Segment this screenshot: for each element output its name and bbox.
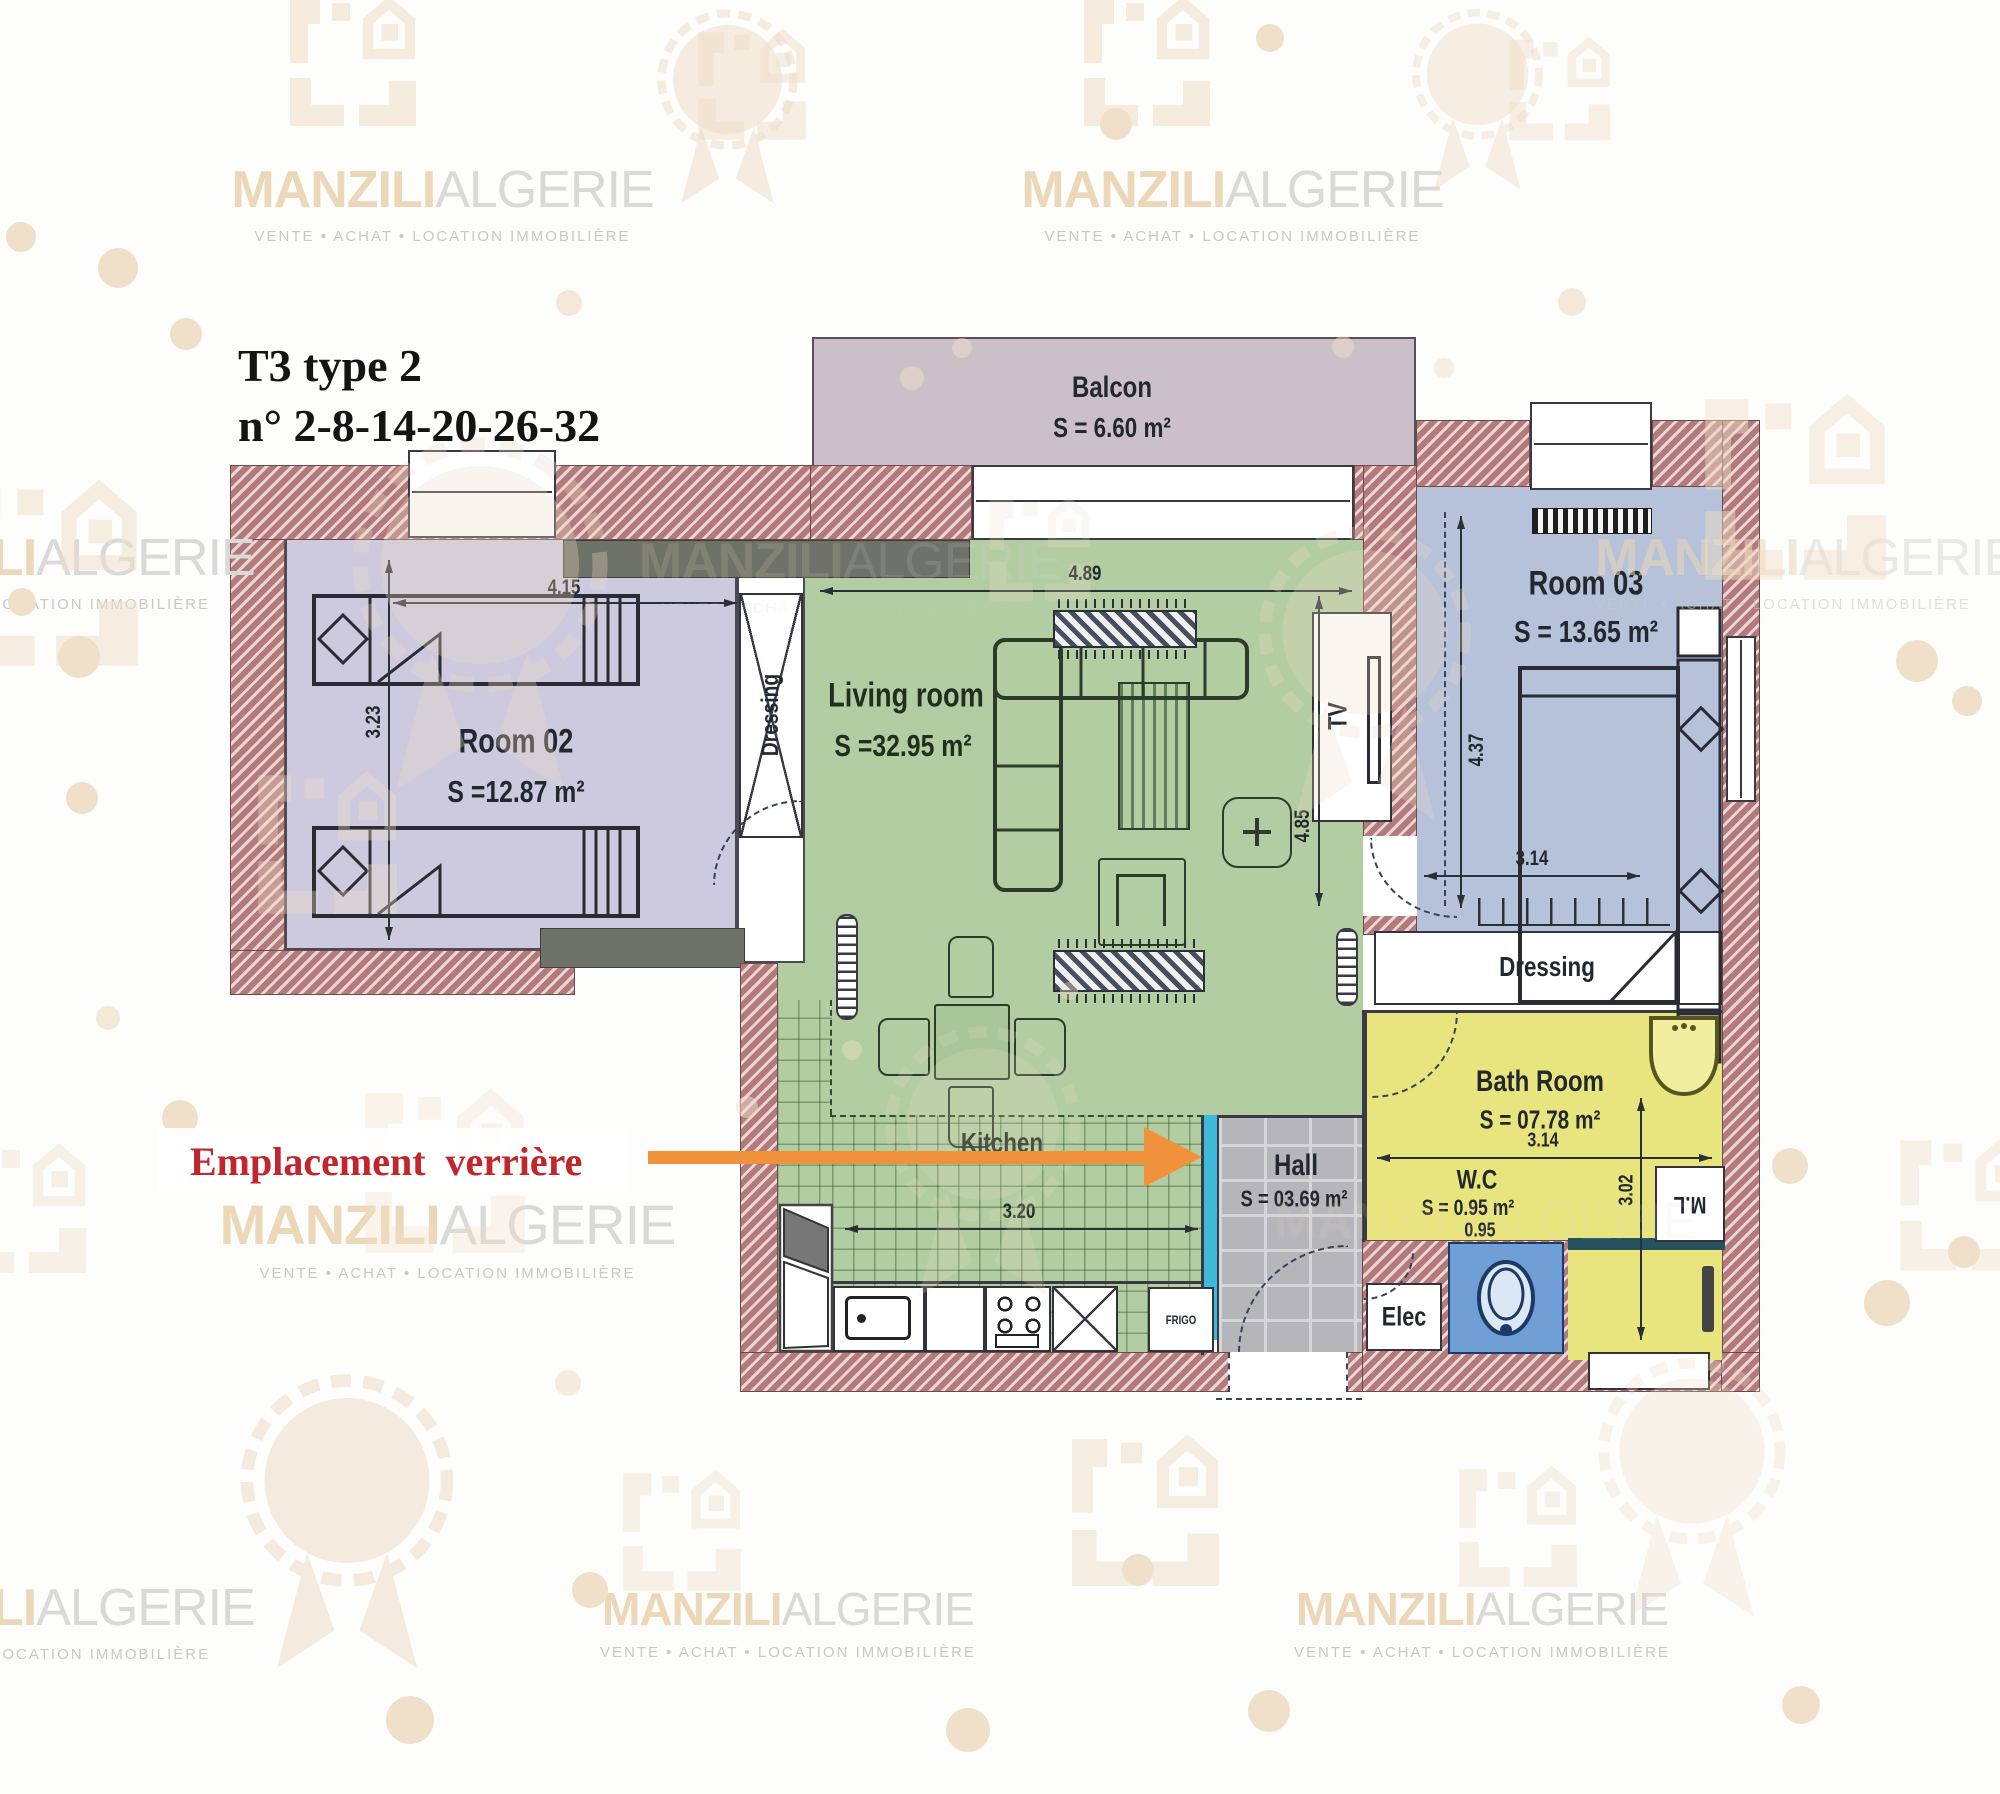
annotation-label: Emplacement verrière xyxy=(190,1138,582,1185)
medal-icon xyxy=(1400,5,1555,205)
dot xyxy=(1952,686,1982,716)
dot xyxy=(58,636,100,678)
chair xyxy=(878,1018,930,1076)
brand-logo: MANZILIALGERIE VENTE • ACHAT • LOCATION … xyxy=(215,160,670,245)
entrance-gap xyxy=(1228,1352,1348,1392)
dim-room03-w: 3.14 xyxy=(1516,847,1549,871)
balcony-door-window xyxy=(972,465,1354,540)
room03-name: Room 03 xyxy=(1529,565,1644,604)
medal-icon xyxy=(222,1368,472,1693)
brand-logo: MANZILIALGERIE VENTE • ACHAT • LOCATION … xyxy=(578,1582,998,1661)
wall xyxy=(1722,420,1760,1392)
brand-tagline: VENTE • ACHAT • LOCATION IMMOBILIÈRE xyxy=(215,228,670,245)
living-name: Living room xyxy=(828,677,984,716)
dim-line xyxy=(820,590,1352,592)
washing-machine-label: M.L xyxy=(1673,1190,1706,1218)
brand-light: ALGERIE xyxy=(435,161,653,219)
wall xyxy=(230,950,575,995)
living-area-patch xyxy=(970,540,1363,580)
stove-front xyxy=(995,1334,1039,1348)
single-bed xyxy=(312,592,640,688)
bath-name: Bath Room xyxy=(1476,1065,1604,1099)
building-icon xyxy=(1500,30,1620,150)
wall xyxy=(740,963,778,1392)
dot xyxy=(170,318,202,350)
beam xyxy=(563,540,970,578)
toilet xyxy=(1448,1242,1564,1354)
dim-line xyxy=(1640,1098,1642,1340)
elec-label: Elec xyxy=(1382,1302,1426,1333)
double-bed xyxy=(1518,606,1724,1064)
room02-area-label: S =12.87 m² xyxy=(447,774,584,810)
single-bed xyxy=(312,824,640,920)
building-icon xyxy=(1058,1425,1233,1600)
sink-drain xyxy=(857,1314,866,1323)
balcony-area-label: S = 6.60 m² xyxy=(1053,412,1171,444)
window xyxy=(1530,402,1652,490)
building-icon xyxy=(612,1462,752,1602)
coffee-table xyxy=(1098,858,1186,946)
tv-screen xyxy=(1367,656,1381,784)
chair xyxy=(948,936,994,998)
dishwasher-slot xyxy=(1052,1286,1118,1352)
dot xyxy=(1122,1554,1154,1586)
brand-logo: MANZILIALGERIE VENTE • ACHAT • LOCATION … xyxy=(1005,160,1460,245)
plan-title-line2: n° 2-8-14-20-26-32 xyxy=(238,396,600,456)
building-icon xyxy=(1888,1128,2000,1283)
kitchen-boundary xyxy=(830,1000,832,1115)
kitchen-counter xyxy=(925,1286,985,1352)
dot xyxy=(386,1696,434,1744)
dot xyxy=(1948,1236,1980,1268)
brand-bold: MANZILI xyxy=(231,161,435,219)
tv-label: TV xyxy=(1323,702,1354,730)
fringed-rug xyxy=(1053,950,1205,992)
window-sill-marks xyxy=(1532,508,1652,534)
radiator xyxy=(1336,928,1358,1006)
shower-area xyxy=(1568,1250,1722,1360)
kitchen-sink xyxy=(833,1286,925,1352)
dot xyxy=(98,248,138,288)
dot xyxy=(6,222,36,252)
fringed-rug xyxy=(1053,610,1197,648)
kitchen-boundary xyxy=(830,1115,1203,1117)
hall-area-label: S = 03.69 m² xyxy=(1241,1186,1348,1213)
beam xyxy=(540,928,745,968)
wc-width-label: 0.95 xyxy=(1464,1220,1495,1243)
plan-title-line1: T3 type 2 xyxy=(238,336,600,396)
plus-icon xyxy=(1255,818,1259,846)
dot xyxy=(1434,358,1454,378)
brand-logo: MANZILIALGERIE VENTE • ACHAT • LOCATION … xyxy=(210,1192,685,1282)
brand-logo: MANZILIALGERIE VENTE • ACHAT • LOCATION … xyxy=(1272,1582,1692,1661)
living-area-label: S =32.95 m² xyxy=(834,728,971,764)
wall xyxy=(230,465,285,995)
dressing2-label: Dressing xyxy=(1499,951,1595,983)
building-icon xyxy=(278,0,428,138)
wc-area-label: S = 0.95 m² xyxy=(1422,1195,1514,1221)
shower-tray xyxy=(1588,1352,1710,1390)
room02-name: Room 02 xyxy=(459,723,574,762)
brand-logo-partial: LIALGERIE LOCATION IMMOBILIÈRE xyxy=(0,1578,312,1663)
dot xyxy=(1864,1280,1910,1326)
medal-icon xyxy=(645,5,810,220)
dim-line xyxy=(1424,875,1640,877)
building-icon xyxy=(0,1135,98,1285)
dot xyxy=(555,1370,581,1396)
dot xyxy=(1248,1690,1290,1732)
dot xyxy=(1782,1686,1820,1724)
dot xyxy=(556,290,582,316)
wall xyxy=(810,465,972,540)
entrance-threshold xyxy=(1216,1398,1362,1400)
dim-line xyxy=(1318,596,1320,906)
wall xyxy=(1416,420,1530,487)
dim-wc-h: 3.02 xyxy=(1616,1174,1639,1205)
wc-name: W.C xyxy=(1457,1165,1498,1196)
chair xyxy=(1014,1018,1066,1076)
dim-line xyxy=(393,602,737,604)
dim-line xyxy=(1460,516,1462,908)
balcony-name: Balcon xyxy=(1072,371,1152,405)
counter-front-line xyxy=(833,1281,1203,1284)
dim-room03-h: 4.37 xyxy=(1465,734,1489,767)
dot xyxy=(96,1006,120,1030)
dim-line xyxy=(388,560,390,940)
dim-living-w: 4.89 xyxy=(1069,562,1102,586)
dim-kitchen-w: 3.20 xyxy=(1003,1200,1036,1224)
plan-title: T3 type 2 n° 2-8-14-20-26-32 xyxy=(238,336,600,456)
folding-door xyxy=(779,1204,833,1352)
annotation-arrow-head xyxy=(1144,1127,1202,1187)
dim-room02-h: 3.23 xyxy=(362,706,386,739)
radiator xyxy=(836,914,858,1020)
dot xyxy=(946,1708,990,1752)
dot xyxy=(1100,108,1132,140)
dressing1-label: Dressing xyxy=(757,674,785,756)
dot xyxy=(8,588,36,616)
building-icon xyxy=(1448,1458,1588,1598)
area-rug xyxy=(1118,682,1190,830)
window xyxy=(1726,636,1756,802)
dot xyxy=(1256,24,1284,52)
dim-room02-w: 4.15 xyxy=(548,576,581,600)
coffee-table-inner xyxy=(1116,874,1166,926)
dim-living-h: 4.85 xyxy=(1291,810,1315,843)
building-icon xyxy=(0,468,155,683)
fridge-label: FRIGO xyxy=(1166,1313,1196,1327)
dot xyxy=(1896,640,1938,682)
floor-plan-page: MANZILIALGERIE VENTE • ACHAT • LOCATION … xyxy=(0,0,2000,1794)
dot xyxy=(1558,288,1586,316)
annotation-arrow-line xyxy=(648,1151,1148,1164)
dot xyxy=(66,782,98,814)
room03-area-label: S = 13.65 m² xyxy=(1514,614,1658,650)
building-icon xyxy=(688,22,816,150)
dot xyxy=(1772,1148,1808,1184)
stove xyxy=(985,1286,1051,1352)
medal-icon xyxy=(1582,1352,1802,1638)
dim-line xyxy=(1377,1157,1712,1159)
dim-line xyxy=(845,1228,1198,1230)
dot xyxy=(572,1572,608,1608)
dining-table xyxy=(934,1004,1010,1080)
partition-line xyxy=(1362,1010,1365,1242)
door-swing-line xyxy=(1444,512,1446,906)
sink-basin xyxy=(845,1296,911,1340)
building-icon xyxy=(1072,0,1222,138)
side-table xyxy=(1222,797,1292,868)
shower-door xyxy=(1702,1266,1714,1332)
hall-name: Hall xyxy=(1274,1149,1318,1183)
window xyxy=(408,450,556,538)
dim-bath-w: 3.14 xyxy=(1527,1130,1558,1153)
bathroom-sink xyxy=(1645,1014,1723,1098)
